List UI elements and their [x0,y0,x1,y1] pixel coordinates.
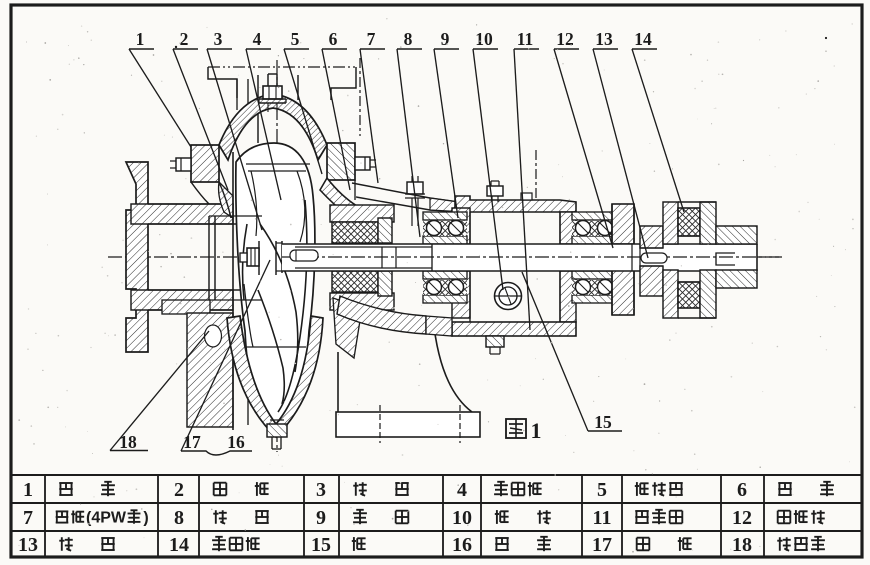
svg-text:1: 1 [23,479,33,501]
svg-text:13: 13 [18,534,38,556]
svg-text:9: 9 [316,507,326,529]
svg-text:10: 10 [452,507,472,529]
svg-text:): ) [143,510,148,527]
svg-text:(4PW: (4PW [86,510,127,527]
svg-text:16: 16 [452,534,472,556]
svg-text:12: 12 [732,507,752,529]
svg-text:10: 10 [475,29,493,49]
svg-text:7: 7 [367,29,376,49]
svg-text:2: 2 [180,29,189,49]
svg-text:4: 4 [457,479,467,501]
svg-text:8: 8 [174,507,184,529]
svg-text:8: 8 [404,29,413,49]
svg-text:13: 13 [595,29,613,49]
svg-text:18: 18 [732,534,752,556]
svg-text:2: 2 [174,479,184,501]
svg-text:16: 16 [227,432,245,452]
svg-text:4: 4 [253,29,262,49]
svg-text:11: 11 [593,507,612,529]
svg-text:11: 11 [517,29,534,49]
svg-text:14: 14 [634,29,652,49]
svg-text:3: 3 [316,479,326,501]
svg-text:18: 18 [119,432,137,452]
svg-text:3: 3 [214,29,223,49]
svg-text:9: 9 [441,29,450,49]
svg-text:14: 14 [169,534,189,556]
svg-text:6: 6 [737,479,747,501]
svg-text:12: 12 [556,29,574,49]
svg-text:6: 6 [329,29,338,49]
svg-text:7: 7 [23,507,33,529]
svg-text:15: 15 [311,534,331,556]
svg-text:5: 5 [291,29,300,49]
svg-text:1: 1 [531,418,542,443]
svg-text:15: 15 [594,412,612,432]
svg-text:17: 17 [592,534,612,556]
svg-text:5: 5 [597,479,607,501]
svg-text:1: 1 [136,29,145,49]
